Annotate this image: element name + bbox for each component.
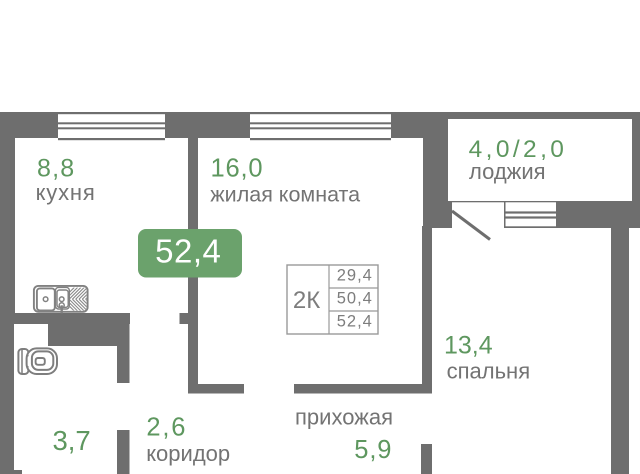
svg-text:5,9: 5,9 <box>354 436 392 464</box>
svg-text:коридор: коридор <box>146 441 230 466</box>
svg-text:52,4: 52,4 <box>337 313 373 331</box>
svg-text:50,4: 50,4 <box>337 290 373 308</box>
svg-text:прихожая: прихожая <box>295 405 393 430</box>
svg-text:52,4: 52,4 <box>155 233 221 270</box>
svg-text:жилая комната: жилая комната <box>210 182 360 206</box>
svg-text:спальня: спальня <box>447 358 531 383</box>
svg-text:16,0: 16,0 <box>211 155 264 183</box>
svg-text:2К: 2К <box>293 287 320 314</box>
svg-text:8,8: 8,8 <box>37 155 75 183</box>
svg-text:лоджия: лоджия <box>469 159 546 184</box>
svg-text:29,4: 29,4 <box>337 267 373 285</box>
svg-text:3,7: 3,7 <box>53 425 91 456</box>
svg-text:кухня: кухня <box>36 180 96 205</box>
svg-text:13,4: 13,4 <box>444 331 493 359</box>
svg-text:2,6: 2,6 <box>146 413 187 441</box>
